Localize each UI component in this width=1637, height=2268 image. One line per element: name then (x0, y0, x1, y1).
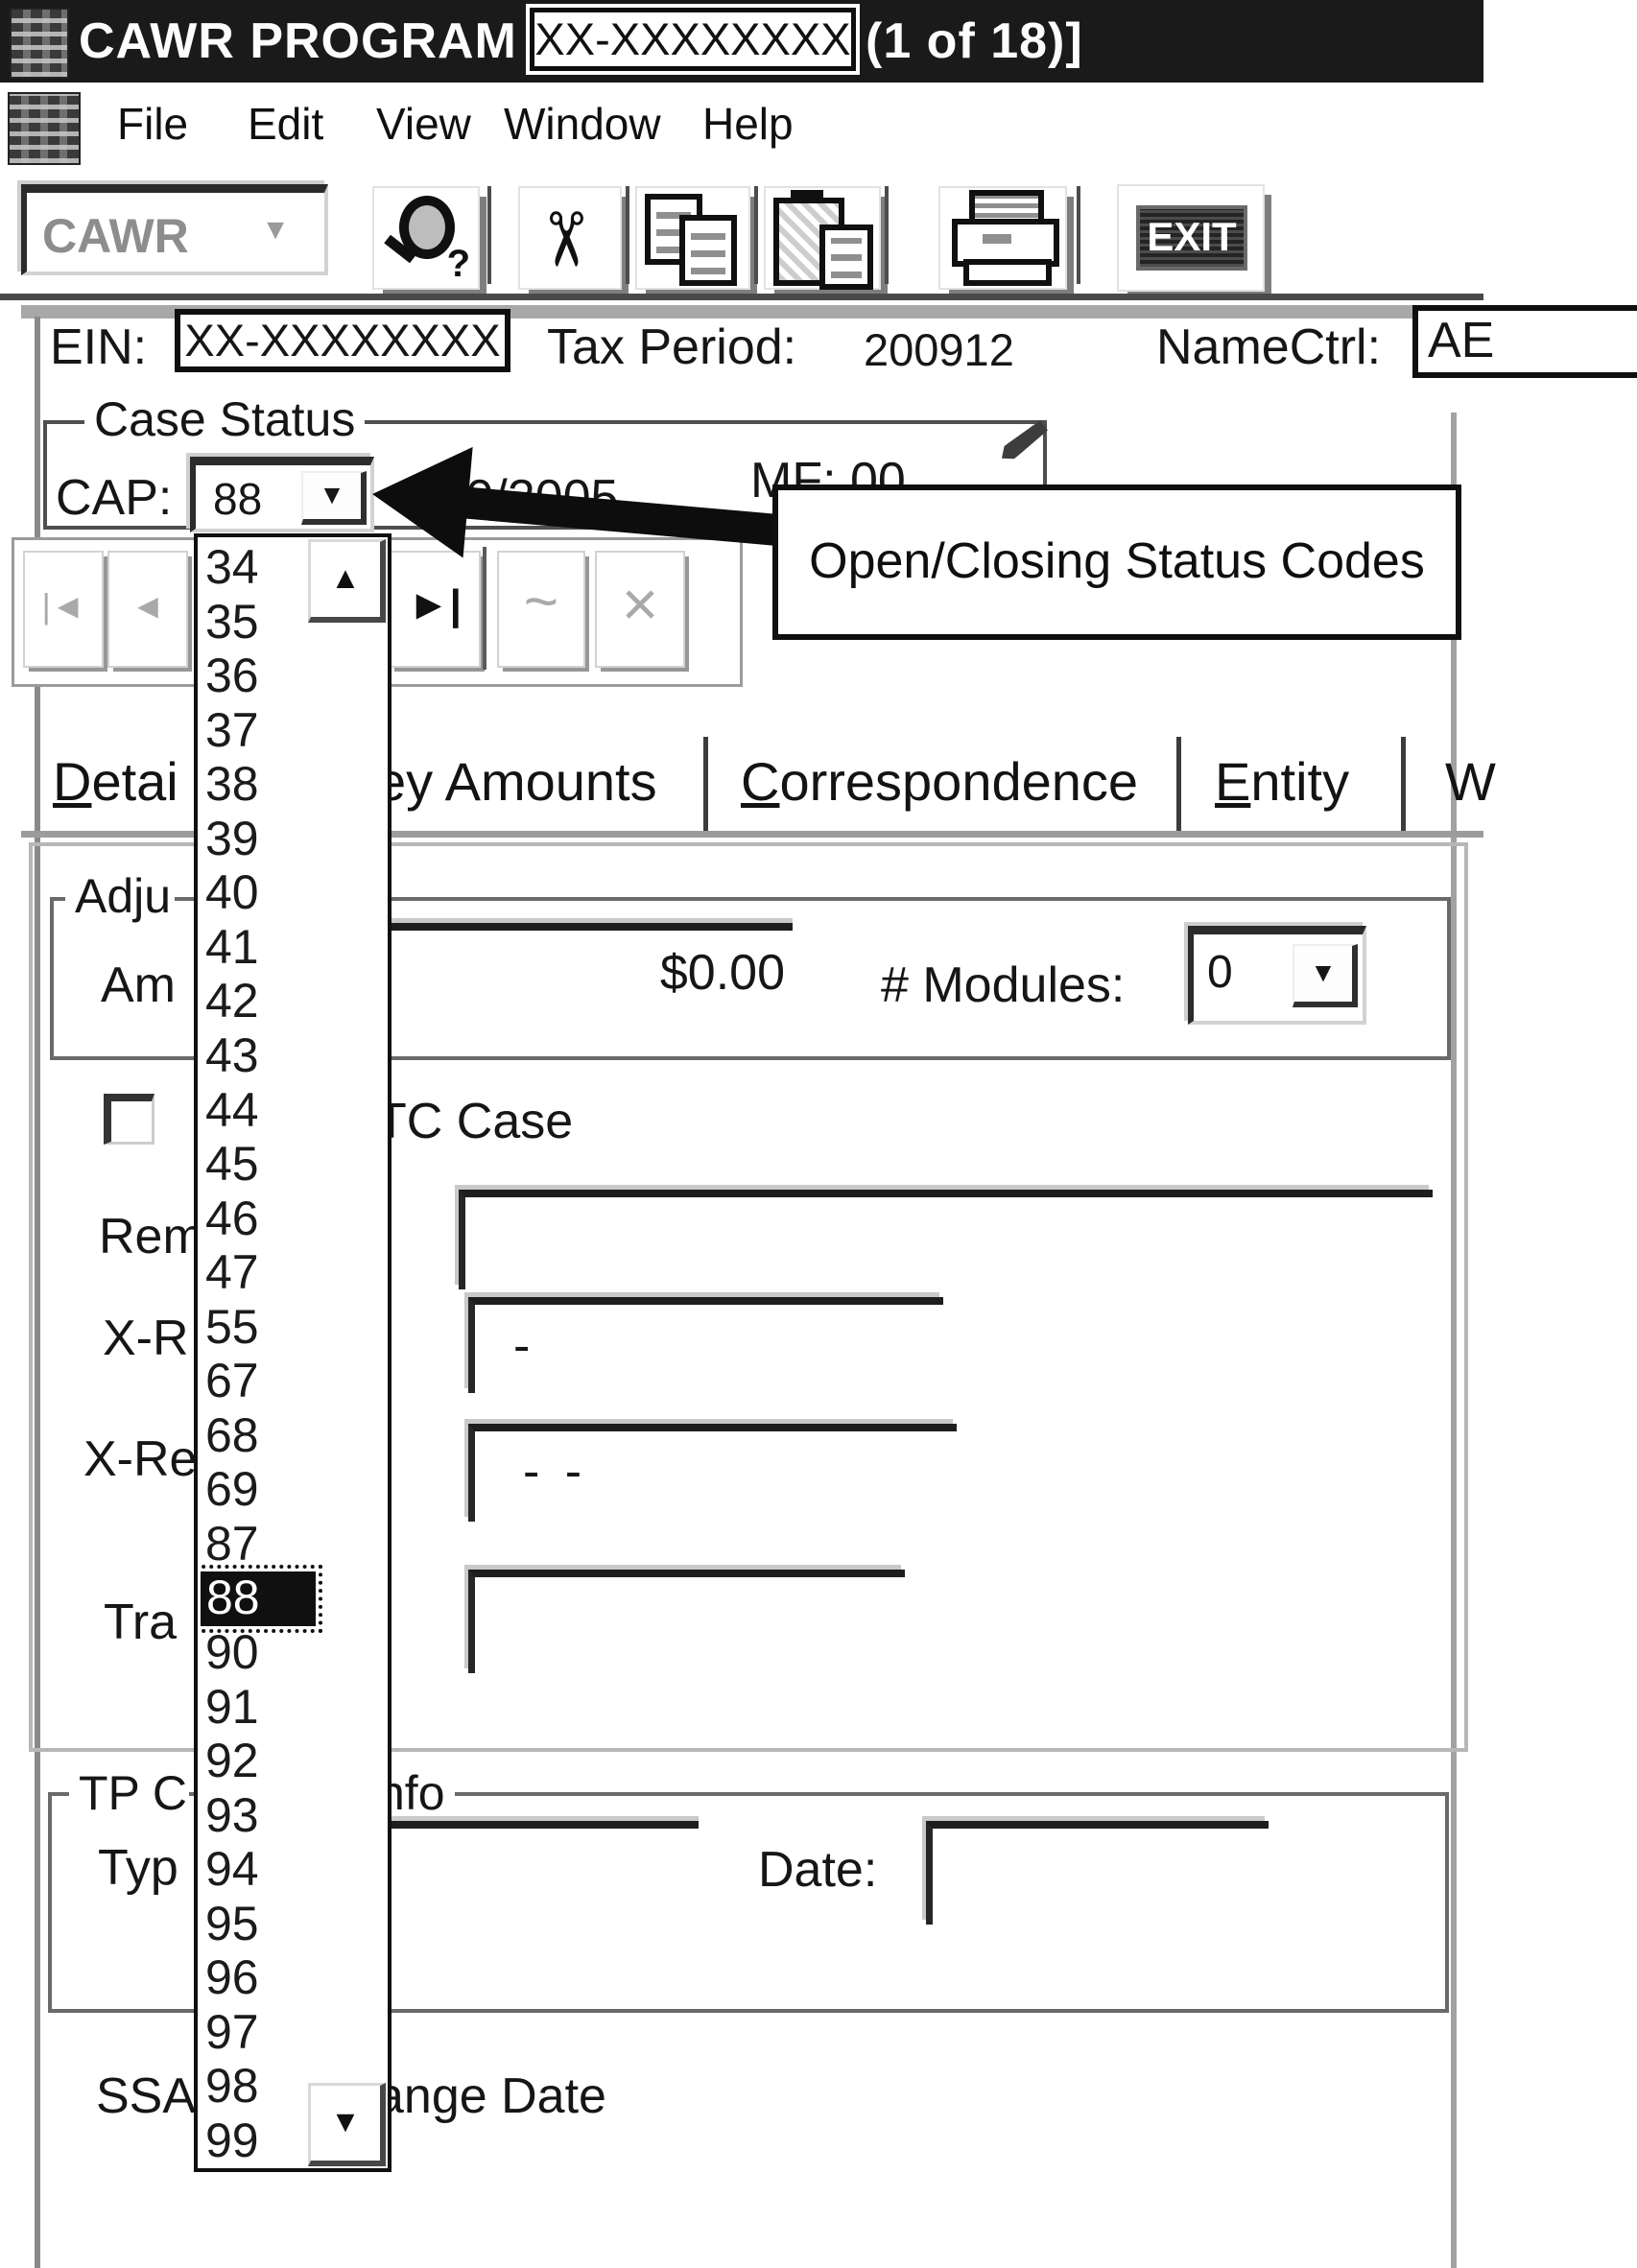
status-option-67[interactable]: 67 (205, 1355, 349, 1409)
menu-app-icon (8, 92, 81, 165)
status-option-36[interactable]: 36 (205, 650, 349, 704)
modules-combobox[interactable]: 0 ▼ (1188, 926, 1366, 1025)
namectrl-label: NameCtrl: (1156, 321, 1381, 374)
menu-help[interactable]: Help (702, 98, 794, 150)
modules-label: # Modules: (881, 959, 1125, 1012)
arrow-shaft (455, 486, 787, 547)
date-field[interactable] (926, 1821, 1269, 1925)
title-redacted-ein: XX-XXXXXXXX (530, 8, 856, 71)
xref1-field[interactable]: - (468, 1297, 943, 1393)
trans-label-partial: Tra (104, 1596, 177, 1649)
status-option-96[interactable]: 96 (205, 1951, 349, 2006)
cap-combobox-value: 88 (213, 473, 262, 525)
toolbar-divider (0, 294, 1483, 300)
toolbar-separator (487, 186, 491, 284)
tc-case-checkbox[interactable] (104, 1094, 154, 1145)
xref2-label-partial: X-Re (83, 1433, 197, 1486)
cap-label: CAP: (56, 472, 172, 525)
modules-combobox-value: 0 (1207, 946, 1233, 999)
prev-record-icon: ◄ (130, 586, 165, 626)
arrow-up-icon: ▲ (330, 560, 361, 595)
annotation-callout: Open/Closing Status Codes (772, 484, 1461, 640)
tab-worksheet[interactable]: W (1445, 750, 1496, 813)
print-button[interactable] (938, 186, 1067, 290)
change-date-label-partial: ange Date (376, 2070, 606, 2123)
context-combobox[interactable]: CAWR ▼ (21, 184, 328, 275)
app-icon (10, 8, 69, 79)
cut-button[interactable]: ✂ (518, 186, 622, 290)
ein-field[interactable]: XX-XXXXXXXX (175, 309, 510, 372)
remarks-label-partial: Rem (99, 1211, 204, 1264)
cap-combobox[interactable]: 88 ▼ (190, 457, 374, 532)
status-option-38[interactable]: 38 (205, 758, 349, 813)
tab-separator (703, 737, 708, 831)
status-option-39[interactable]: 39 (205, 813, 349, 867)
status-option-94[interactable]: 94 (205, 1843, 349, 1898)
status-option-95[interactable]: 95 (205, 1898, 349, 1952)
status-option-92[interactable]: 92 (205, 1735, 349, 1789)
type-label-partial: Typ (98, 1842, 178, 1895)
chevron-down-icon[interactable]: ▼ (261, 214, 290, 247)
status-option-68[interactable]: 68 (205, 1409, 349, 1464)
tab-separator (1401, 737, 1406, 831)
question-icon: ? (447, 243, 470, 286)
type-field[interactable] (386, 1821, 699, 1905)
toolbar-separator (885, 186, 889, 284)
wave-icon: ~ (524, 569, 558, 635)
ein-label: EIN: (50, 321, 147, 374)
search-help-button[interactable]: ? (372, 186, 480, 290)
menu-view[interactable]: View (376, 98, 471, 150)
cap-status-dropdown-list[interactable]: 3435363738394041424344454647556768698788… (194, 533, 391, 2172)
menu-edit[interactable]: Edit (248, 98, 323, 150)
trans-field[interactable] (468, 1570, 905, 1673)
status-option-41[interactable]: 41 (205, 921, 349, 976)
tab-detail[interactable]: Detai (53, 750, 178, 813)
cawr-program-window: CAWR PROGRAM - [ XX-XXXXXXXX (1 of 18)] … (0, 0, 1637, 2268)
status-option-37[interactable]: 37 (205, 704, 349, 759)
first-record-button[interactable]: |◄ (23, 551, 104, 668)
menu-window[interactable]: Window (504, 98, 661, 150)
title-bar: CAWR PROGRAM - [ XX-XXXXXXXX (1 of 18)] (0, 0, 1483, 83)
xref1-label-partial: X-R (103, 1312, 189, 1365)
status-option-43[interactable]: 43 (205, 1029, 349, 1084)
case-status-group-label: Case Status (84, 391, 365, 447)
paste-button[interactable] (764, 186, 881, 290)
status-option-97[interactable]: 97 (205, 2006, 349, 2061)
status-option-88[interactable]: 88 (201, 1571, 316, 1626)
title-text-suffix: (1 of 18)] (866, 12, 1083, 70)
status-option-40[interactable]: 40 (205, 866, 349, 921)
amount-field[interactable]: $0.00 (384, 923, 793, 1015)
exit-button[interactable]: EXIT (1117, 184, 1265, 292)
adjustments-group-label-partial: Adju (65, 868, 175, 924)
nav-separator (483, 547, 486, 670)
ssa-label-partial: SSA (96, 2070, 196, 2123)
status-option-44[interactable]: 44 (205, 1084, 349, 1139)
next-record-icon: ► (408, 581, 450, 628)
status-option-45[interactable]: 45 (205, 1138, 349, 1193)
status-option-55[interactable]: 55 (205, 1301, 349, 1356)
amount-label-partial: Am (101, 959, 176, 1012)
status-option-46[interactable]: 46 (205, 1193, 349, 1247)
status-option-91[interactable]: 91 (205, 1681, 349, 1736)
context-combobox-value: CAWR (42, 208, 189, 264)
scroll-down-button[interactable]: ▼ (308, 2083, 386, 2166)
status-option-93[interactable]: 93 (205, 1789, 349, 1844)
tab-entity[interactable]: Entity (1215, 750, 1349, 813)
cap-dropdown-button[interactable]: ▼ (301, 471, 367, 525)
status-option-87[interactable]: 87 (205, 1518, 349, 1572)
status-option-69[interactable]: 69 (205, 1463, 349, 1518)
tp-group-label-left-partial: TP C (69, 1765, 189, 1821)
title-text-prefix: CAWR PROGRAM - [ (79, 12, 581, 70)
next-record-button[interactable]: ►| (389, 551, 481, 668)
tab-correspondence[interactable]: Correspondence (741, 750, 1138, 813)
exit-icon: EXIT (1136, 205, 1247, 271)
xref2-field[interactable]: - - (468, 1424, 957, 1522)
namectrl-field[interactable]: AE (1412, 305, 1637, 378)
chevron-down-icon: ▼ (1310, 957, 1337, 987)
tax-period-label: Tax Period: (547, 321, 796, 374)
toolbar-separator (1077, 186, 1080, 284)
date-label: Date: (758, 1844, 877, 1897)
menu-file[interactable]: File (117, 98, 188, 150)
status-option-47[interactable]: 47 (205, 1246, 349, 1301)
toolbar-separator (626, 186, 629, 284)
modules-dropdown-button[interactable]: ▼ (1293, 944, 1358, 1007)
tc-case-label-partial: TC Case (376, 1096, 573, 1148)
tax-period-value: 200912 (864, 326, 1014, 373)
prev-record-button[interactable]: ◄ (107, 551, 188, 668)
tab-separator (1176, 737, 1181, 831)
chevron-down-icon: ▼ (319, 480, 345, 509)
status-option-90[interactable]: 90 (205, 1626, 349, 1681)
remarks-field[interactable] (459, 1190, 1433, 1289)
scissors-icon: ✂ (521, 208, 608, 271)
first-record-icon: |◄ (42, 586, 85, 626)
toolbar-separator (754, 186, 758, 284)
status-option-42[interactable]: 42 (205, 975, 349, 1029)
tab-money-amounts[interactable]: ey Amounts (376, 750, 657, 813)
arrow-down-icon: ▼ (330, 2104, 361, 2138)
cross-icon: × (622, 568, 659, 639)
copy-button[interactable] (635, 186, 750, 290)
